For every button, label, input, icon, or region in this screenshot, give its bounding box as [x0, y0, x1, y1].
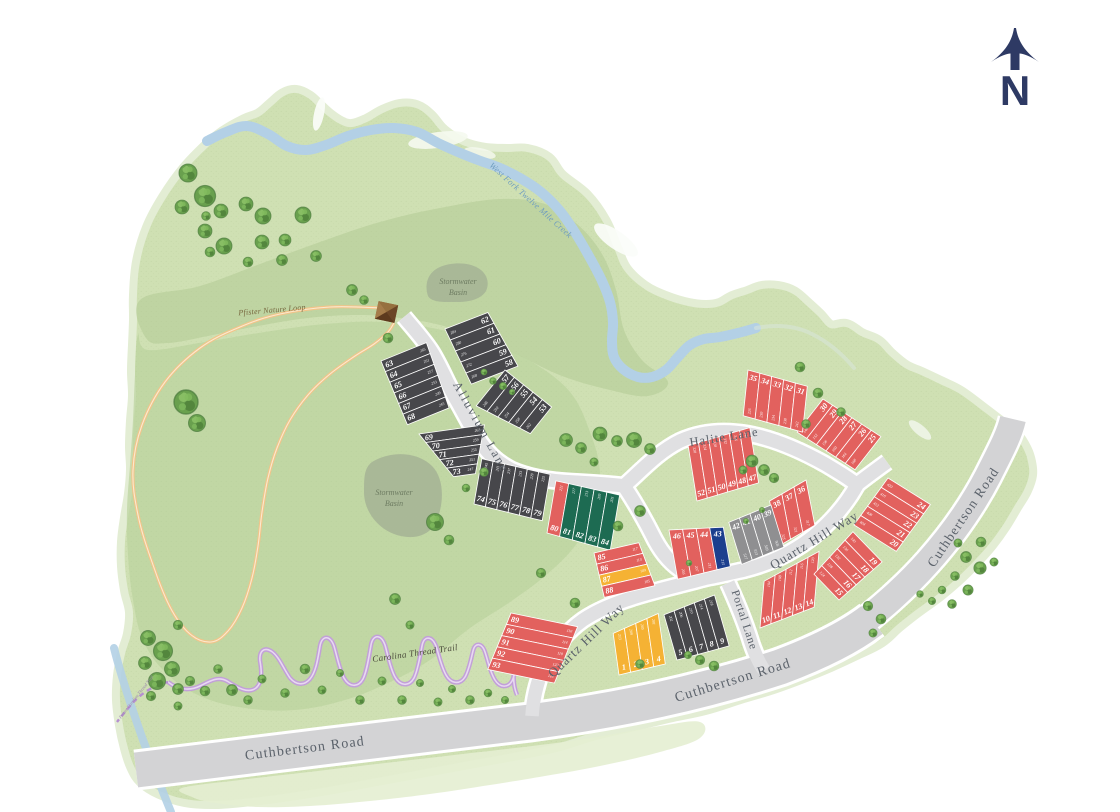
svg-text:70: 70 [431, 441, 440, 451]
svg-text:201: 201 [651, 619, 656, 625]
svg-text:116: 116 [800, 563, 804, 569]
svg-text:226: 226 [747, 408, 752, 414]
svg-text:238: 238 [783, 418, 788, 424]
svg-text:108: 108 [778, 575, 782, 581]
svg-text:209: 209 [629, 629, 634, 635]
svg-text:N: N [1000, 67, 1030, 114]
svg-text:46: 46 [672, 531, 681, 540]
svg-text:73: 73 [452, 467, 461, 477]
svg-text:255: 255 [471, 448, 477, 453]
svg-text:44: 44 [699, 530, 708, 539]
svg-text:251: 251 [469, 458, 475, 463]
svg-text:242: 242 [795, 421, 800, 427]
svg-text:120: 120 [811, 557, 815, 563]
svg-text:104: 104 [767, 581, 771, 587]
svg-text:230: 230 [759, 412, 764, 418]
svg-text:Basin: Basin [449, 288, 467, 297]
svg-text:Stormwater: Stormwater [375, 488, 413, 497]
svg-text:43: 43 [712, 529, 721, 538]
svg-text:259: 259 [473, 438, 479, 443]
svg-text:45: 45 [685, 531, 694, 540]
svg-text:Basin: Basin [385, 499, 403, 508]
svg-text:205: 205 [640, 624, 645, 630]
svg-text:213: 213 [617, 634, 622, 640]
svg-text:Stormwater: Stormwater [439, 277, 477, 286]
svg-text:112: 112 [789, 569, 793, 575]
svg-text:72: 72 [445, 458, 454, 468]
svg-text:234: 234 [771, 415, 776, 421]
